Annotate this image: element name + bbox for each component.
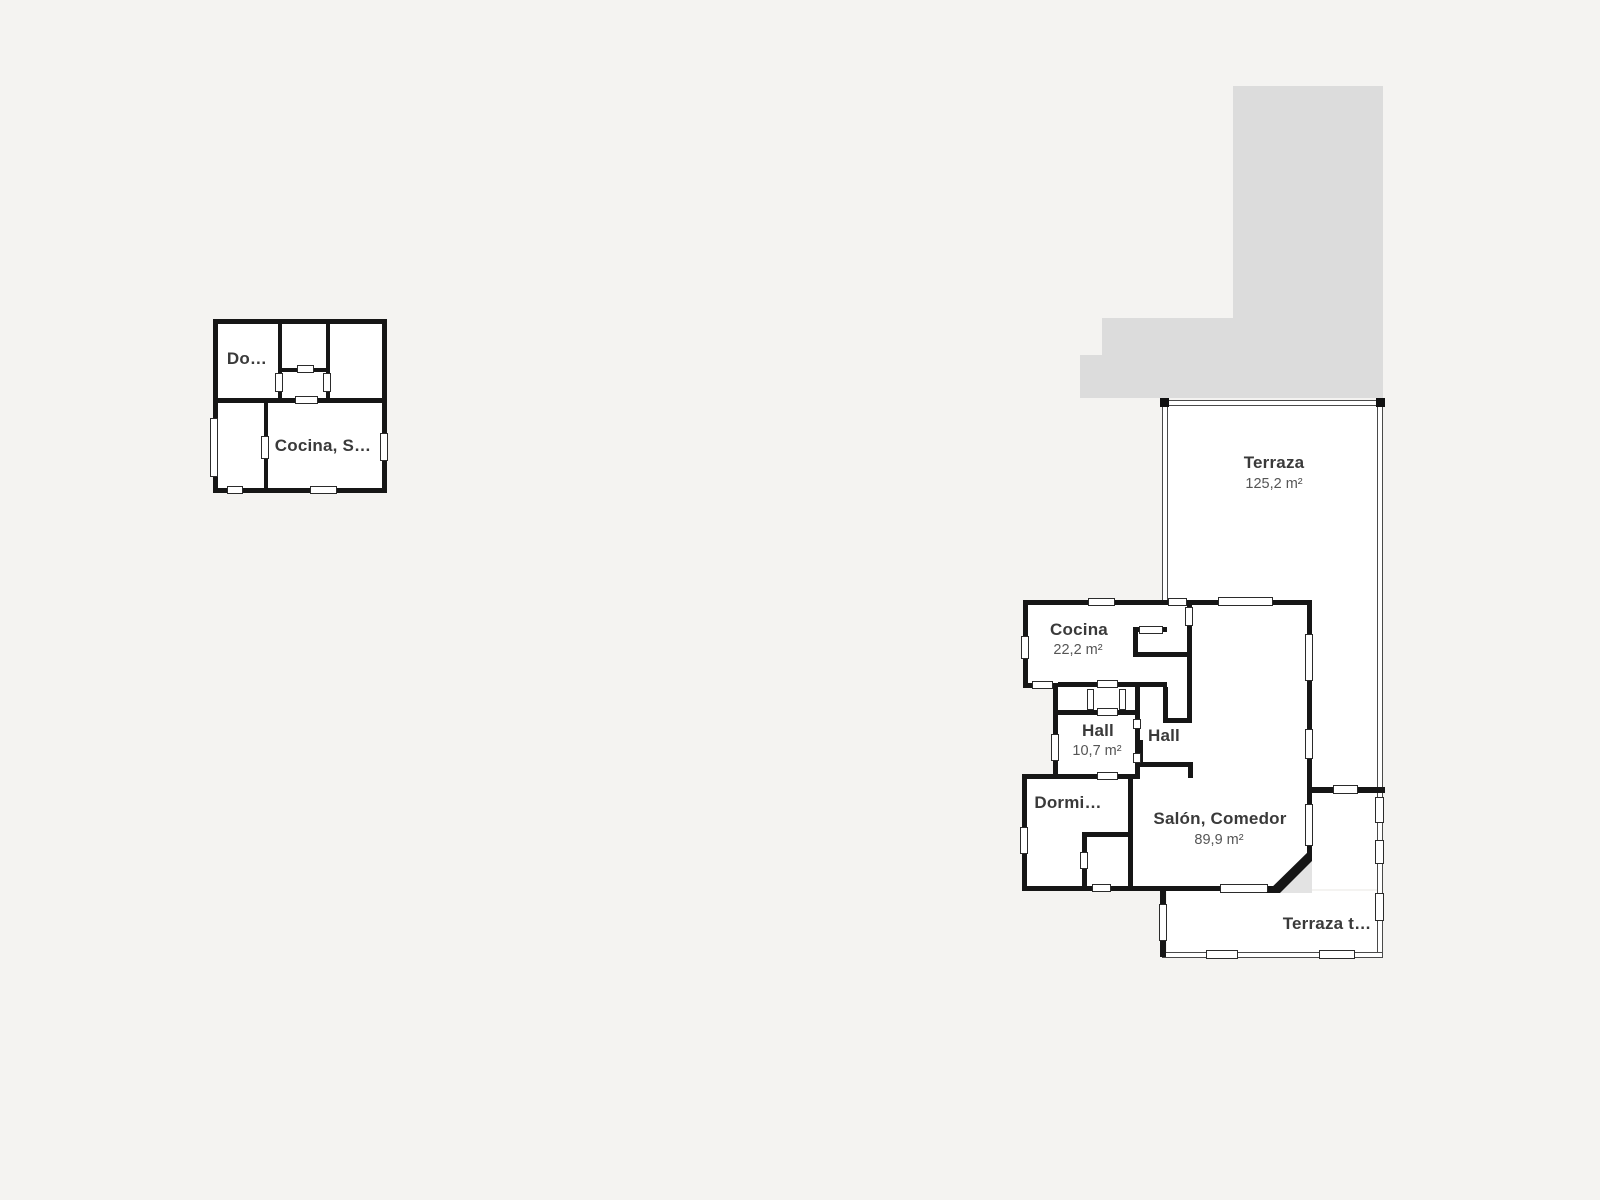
window-slot bbox=[275, 373, 283, 392]
room-label: Do… bbox=[227, 349, 267, 369]
window-slot bbox=[1333, 785, 1358, 794]
room-label: Dormi… bbox=[1034, 793, 1101, 813]
upper-floor-silhouette bbox=[1233, 86, 1383, 398]
window-slot bbox=[1097, 772, 1118, 780]
window-slot bbox=[323, 373, 331, 392]
window-slot bbox=[1139, 626, 1163, 634]
room-label: Hall bbox=[1148, 726, 1180, 746]
window-slot bbox=[1159, 904, 1167, 941]
area-label: 125,2 m² bbox=[1245, 476, 1302, 492]
window-slot bbox=[1092, 884, 1111, 892]
window-slot bbox=[261, 436, 269, 459]
window-slot bbox=[1032, 681, 1053, 689]
area-label: 22,2 m² bbox=[1053, 642, 1102, 658]
room-fill bbox=[216, 322, 384, 490]
room-fill bbox=[1312, 792, 1377, 889]
window-slot bbox=[1305, 729, 1313, 759]
wall bbox=[1133, 652, 1192, 657]
area-label: 10,7 m² bbox=[1072, 743, 1121, 759]
wall bbox=[1053, 688, 1058, 776]
window-slot bbox=[1020, 827, 1028, 854]
window-slot bbox=[297, 365, 314, 373]
room-fill bbox=[1167, 406, 1377, 602]
terrace-wall bbox=[1162, 400, 1168, 602]
window-slot bbox=[1087, 689, 1094, 710]
window-slot bbox=[1375, 797, 1384, 823]
upper-floor-silhouette bbox=[1102, 318, 1233, 398]
window-slot bbox=[1097, 708, 1118, 716]
window-slot bbox=[380, 433, 388, 461]
room-fill bbox=[1312, 602, 1377, 788]
wall bbox=[1140, 762, 1192, 767]
wall bbox=[213, 319, 387, 324]
floorplan-canvas: Do…Cocina, S… Terraza125,2 m²Cocina22,2 … bbox=[0, 0, 1600, 1200]
window-slot bbox=[1220, 884, 1268, 893]
room-label: Cocina bbox=[1050, 620, 1108, 640]
wall bbox=[1163, 718, 1192, 723]
room-label: Terraza bbox=[1244, 453, 1305, 473]
window-slot bbox=[1206, 950, 1238, 959]
room-label: Terraza t… bbox=[1283, 914, 1372, 934]
window-slot bbox=[1021, 636, 1029, 659]
window-slot bbox=[310, 486, 337, 494]
window-slot bbox=[210, 418, 218, 477]
window-slot bbox=[1051, 734, 1059, 761]
wall bbox=[1022, 774, 1140, 779]
room-label: Cocina, S… bbox=[275, 436, 371, 456]
window-slot bbox=[1305, 804, 1313, 846]
window-slot bbox=[1168, 598, 1187, 606]
terrace-wall bbox=[1377, 400, 1383, 790]
window-slot bbox=[1185, 607, 1193, 626]
wall-corner bbox=[1160, 398, 1169, 407]
room-label: Salón, Comedor bbox=[1153, 809, 1286, 829]
window-slot bbox=[1218, 597, 1273, 606]
window-slot bbox=[1097, 680, 1118, 688]
window-slot bbox=[1088, 598, 1115, 606]
area-label: 89,9 m² bbox=[1194, 832, 1243, 848]
wall bbox=[1188, 762, 1193, 778]
window-slot bbox=[1080, 852, 1088, 869]
window-slot bbox=[1375, 840, 1384, 864]
wall bbox=[1082, 832, 1130, 837]
window-slot bbox=[1133, 753, 1141, 763]
window-slot bbox=[1119, 689, 1126, 710]
terrace-wall bbox=[1162, 400, 1383, 406]
window-slot bbox=[1319, 950, 1355, 959]
wall bbox=[1163, 687, 1168, 721]
window-slot bbox=[1133, 719, 1141, 729]
window-slot bbox=[1375, 893, 1384, 921]
window-slot bbox=[227, 486, 243, 494]
wall bbox=[382, 319, 387, 493]
window-slot bbox=[1305, 634, 1313, 681]
upper-floor-silhouette bbox=[1080, 355, 1103, 398]
window-slot bbox=[295, 396, 318, 404]
wall-corner bbox=[1376, 398, 1385, 407]
room-label: Hall bbox=[1082, 721, 1114, 741]
